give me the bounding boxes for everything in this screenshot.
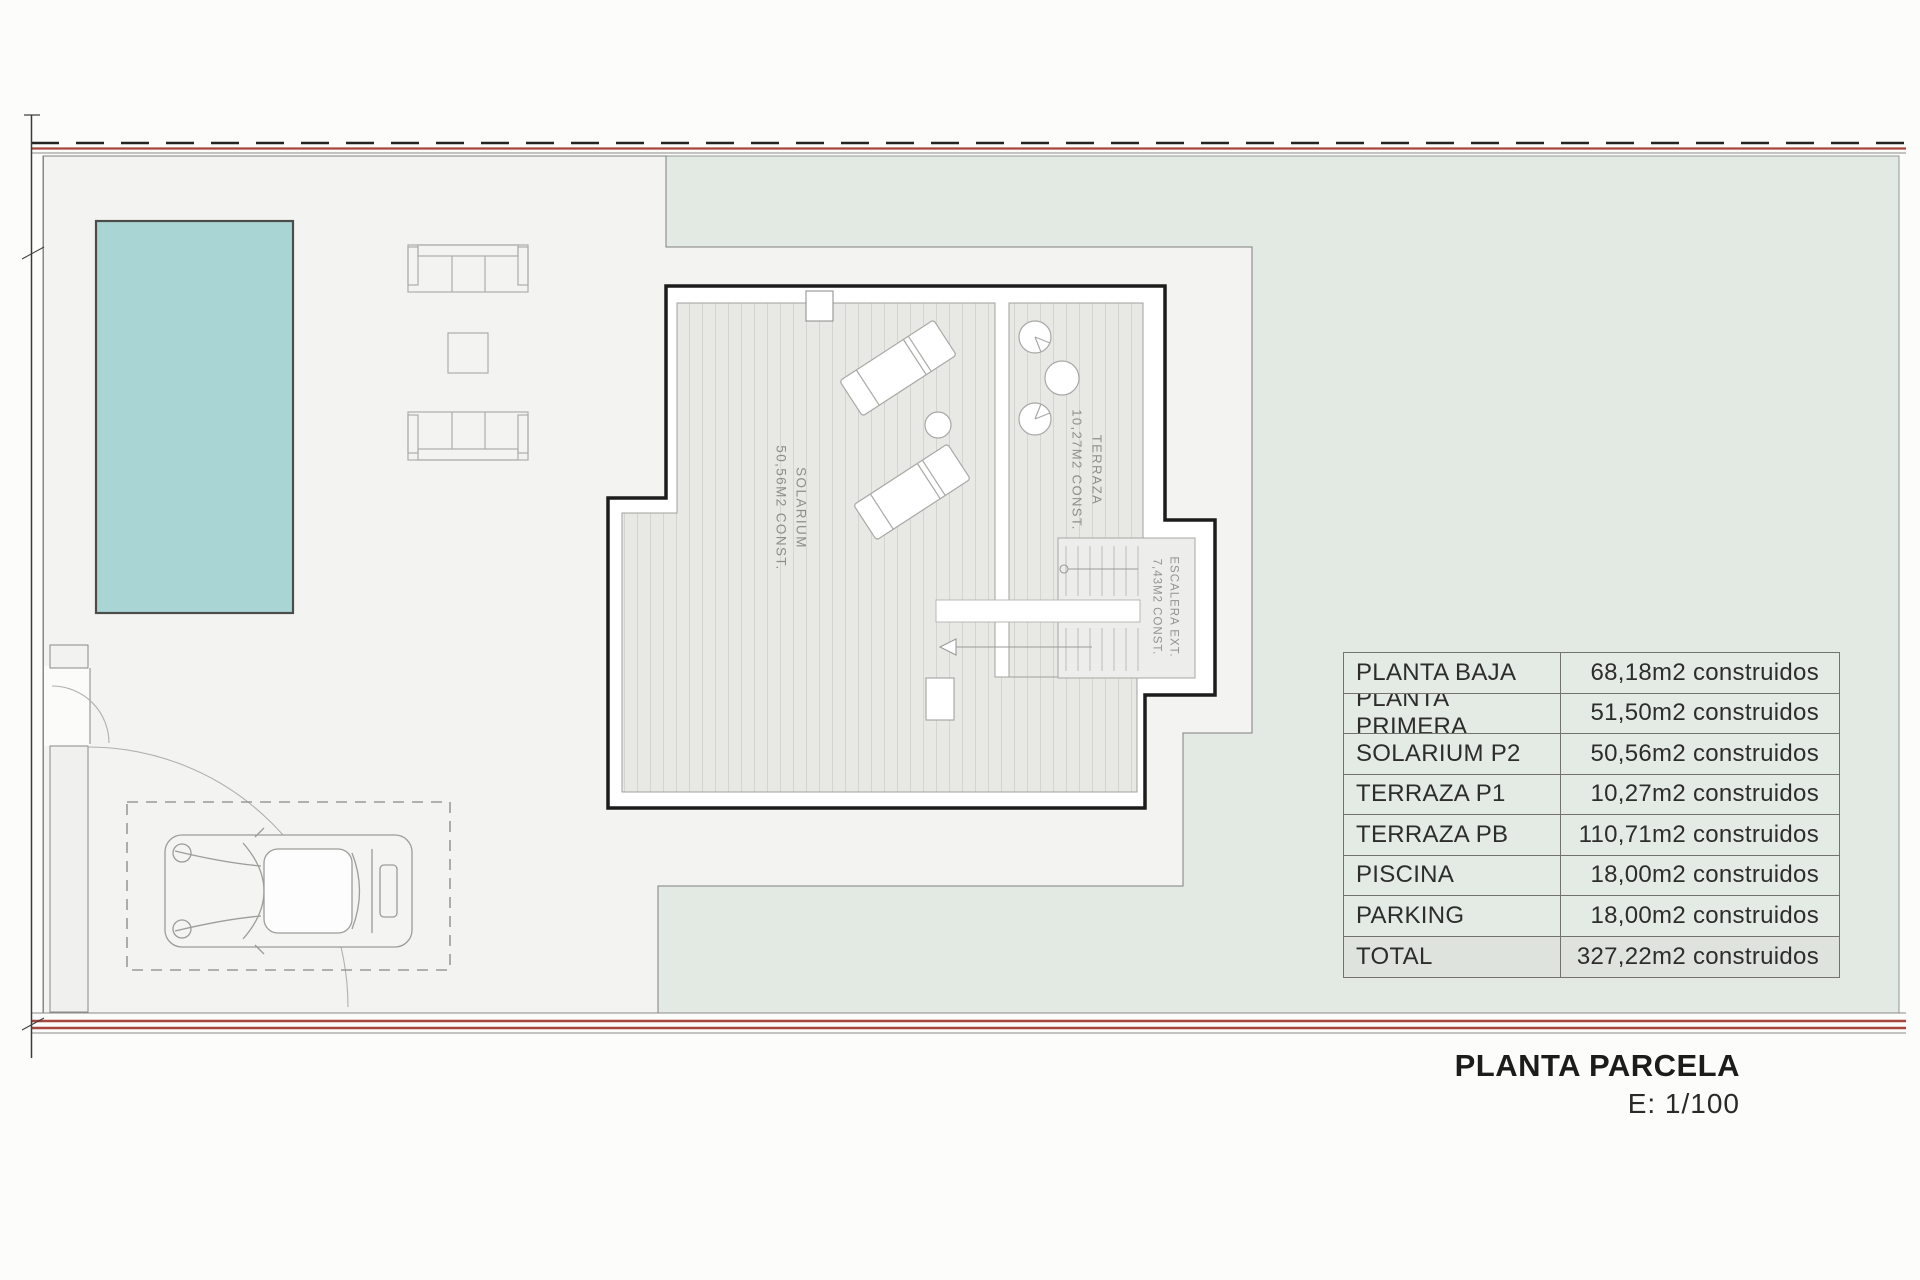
table-row-total: TOTAL 327,22m2 construidos — [1344, 937, 1839, 978]
gate-opening — [44, 666, 90, 746]
table-row: TERRAZA PB 110,71m2 construidos — [1344, 815, 1839, 856]
area-value: 327,22m2 construidos — [1561, 937, 1839, 978]
area-label: PARKING — [1344, 896, 1561, 936]
areas-table: PLANTA BAJA 68,18m2 construidos PLANTA P… — [1343, 652, 1840, 978]
solarium-area: 50,56m2 const. — [770, 445, 790, 570]
site-plan-page: SOLARIUM 50,56m2 const. TERRAZA 10,27m2 … — [0, 0, 1920, 1280]
terraza-name: TERRAZA — [1087, 409, 1107, 530]
solarium-name: SOLARIUM — [790, 445, 810, 570]
area-value: 110,71m2 construidos — [1561, 815, 1839, 855]
area-label: TERRAZA PB — [1344, 815, 1561, 855]
drawing-scale: E: 1/100 — [1455, 1088, 1740, 1120]
table-row: PLANTA BAJA 68,18m2 construidos — [1344, 653, 1839, 694]
area-value: 51,50m2 construidos — [1561, 694, 1839, 734]
escalera-label: ESCALERA EXT. 7,43m2 const. — [1147, 556, 1182, 657]
stair-notch — [926, 678, 954, 720]
terraza-label: TERRAZA 10,27m2 const. — [1068, 409, 1107, 530]
boundary-wall — [50, 746, 88, 1012]
round-table — [1045, 361, 1079, 395]
area-value: 18,00m2 construidos — [1561, 896, 1839, 936]
car — [165, 828, 412, 954]
escalera-name: ESCALERA EXT. — [1164, 556, 1181, 657]
stair-landing — [936, 600, 1140, 622]
area-label: TERRAZA P1 — [1344, 775, 1561, 815]
area-label: PLANTA PRIMERA — [1344, 694, 1561, 734]
table-row: PISCINA 18,00m2 construidos — [1344, 856, 1839, 897]
car-roof — [264, 849, 352, 933]
escalera-area: 7,43m2 const. — [1147, 556, 1164, 657]
gate-pillar — [50, 645, 88, 668]
area-value: 10,27m2 construidos — [1561, 775, 1839, 815]
area-label: PLANTA BAJA — [1344, 653, 1561, 693]
area-value: 18,00m2 construidos — [1561, 856, 1839, 896]
drawing-title: PLANTA PARCELA — [1455, 1048, 1740, 1084]
area-label: TOTAL — [1344, 937, 1561, 978]
side-table — [925, 412, 951, 438]
area-value: 68,18m2 construidos — [1561, 653, 1839, 693]
table-row: SOLARIUM P2 50,56m2 construidos — [1344, 734, 1839, 775]
swimming-pool — [96, 221, 293, 613]
area-label: PISCINA — [1344, 856, 1561, 896]
table-row: PARKING 18,00m2 construidos — [1344, 896, 1839, 937]
skylight-box — [806, 291, 833, 321]
solarium-label: SOLARIUM 50,56m2 const. — [770, 445, 811, 570]
table-row: PLANTA PRIMERA 51,50m2 construidos — [1344, 694, 1839, 735]
area-label: SOLARIUM P2 — [1344, 734, 1561, 774]
title-block: PLANTA PARCELA E: 1/100 — [1455, 1048, 1740, 1120]
area-value: 50,56m2 construidos — [1561, 734, 1839, 774]
table-row: TERRAZA P1 10,27m2 construidos — [1344, 775, 1839, 816]
terraza-area: 10,27m2 const. — [1068, 409, 1088, 530]
